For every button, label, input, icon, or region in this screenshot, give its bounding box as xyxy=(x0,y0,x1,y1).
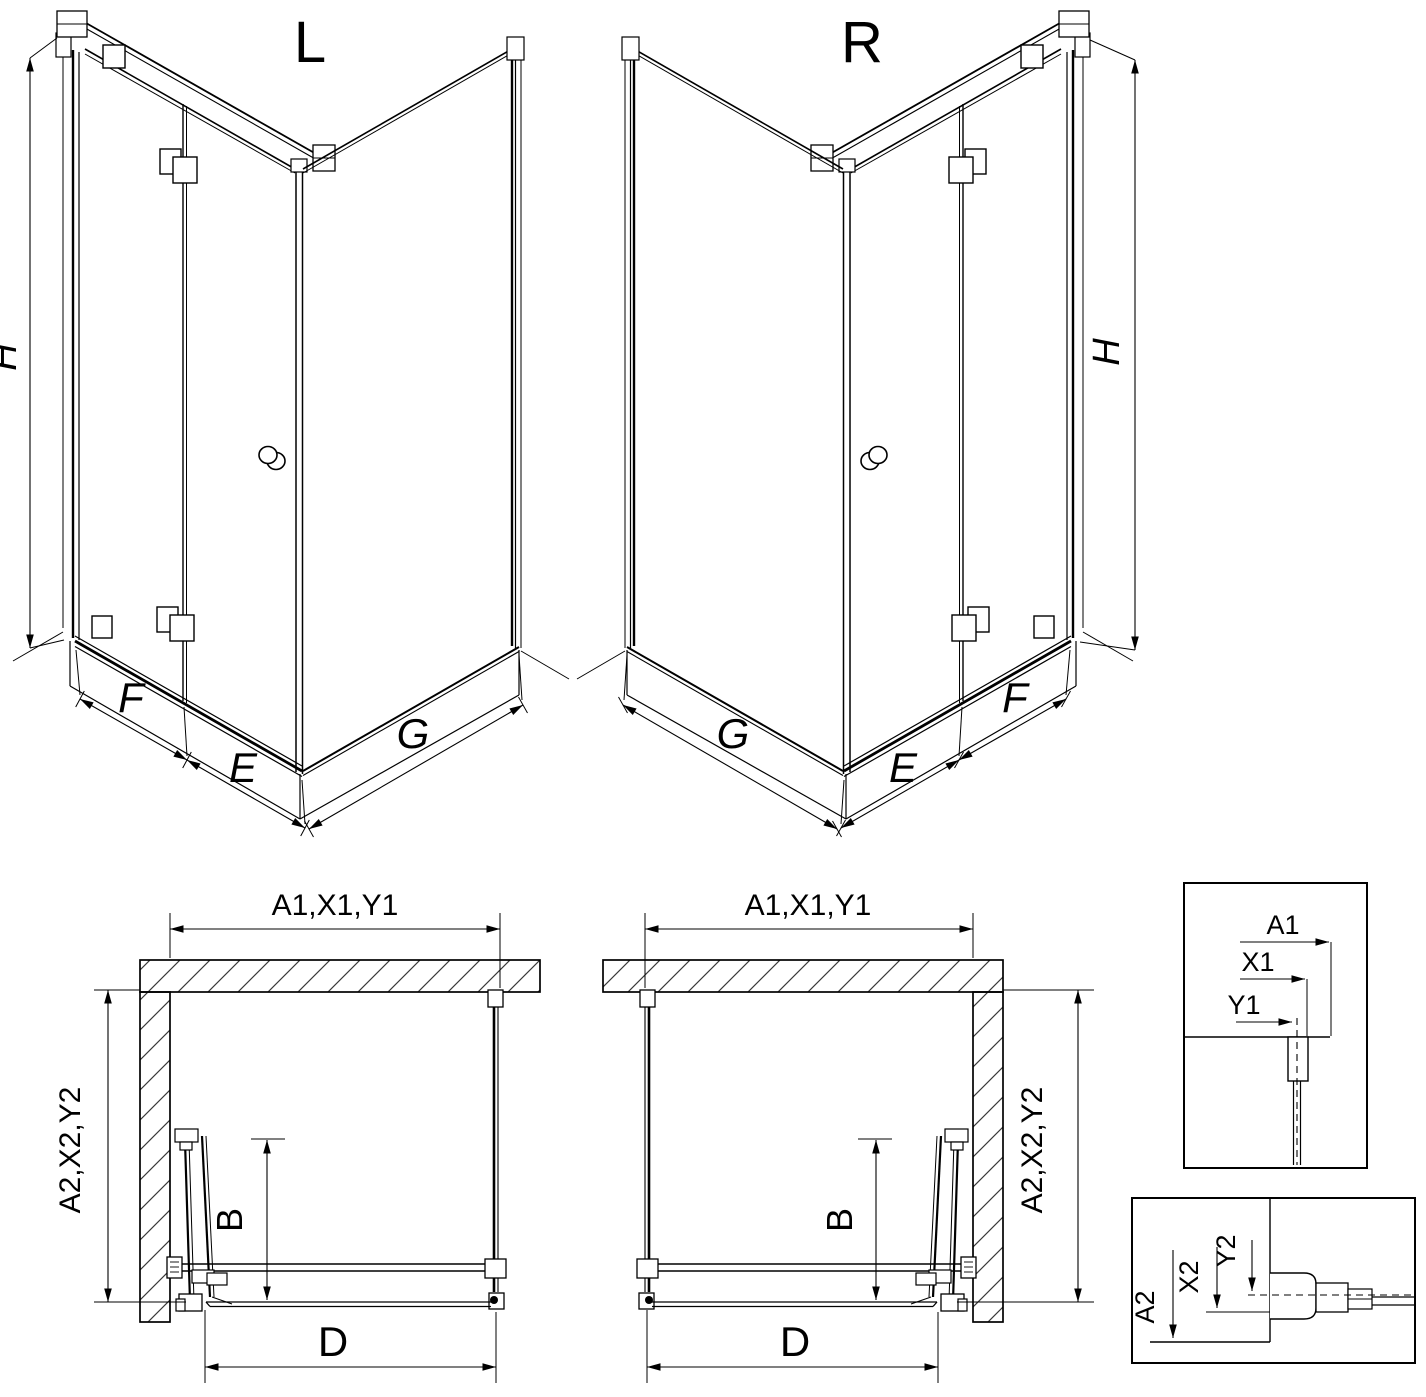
wall-hatch-side-left-plan xyxy=(140,992,170,1322)
dim-label-side-wall-right: G xyxy=(717,710,750,757)
dim-label-door-right-plan: B xyxy=(819,1208,860,1232)
detail-label-a2: A2 xyxy=(1130,1290,1160,1323)
dim-label-opening-right-plan: D xyxy=(780,1318,810,1365)
detail-label-x2: X2 xyxy=(1174,1260,1204,1293)
iso-right-dims-bottom: F E G xyxy=(619,650,1071,837)
iso-left-dim-height: H xyxy=(0,38,64,648)
detail-depth-measurement: A2 X2 Y2 xyxy=(1130,1198,1415,1363)
detail-label-x1: X1 xyxy=(1241,947,1274,977)
dim-label-depth-left-plan: A2,X2,Y2 xyxy=(54,1087,87,1214)
dim-label-door-fixed-left: F xyxy=(118,674,146,721)
dim-label-depth-right-plan: A2,X2,Y2 xyxy=(1016,1087,1049,1214)
plan-right-dim-door: B xyxy=(819,1139,892,1300)
dim-label-door-left-plan: B xyxy=(209,1208,250,1232)
plan-view-right: A1,X1,Y1 A2,X2,Y2 B D xyxy=(603,889,1094,1383)
plan-view-left: A1,X1,Y1 A2,X2,Y2 B D xyxy=(54,889,540,1383)
detail-label-a1: A1 xyxy=(1266,910,1299,940)
dim-label-door-fixed-right: F xyxy=(1002,674,1030,721)
dim-label-height-right: H xyxy=(1086,338,1128,366)
iso-view-left: L H F E G xyxy=(0,10,569,837)
dim-label-height-left: H xyxy=(0,343,25,371)
technical-drawing-sheet: L H F E G R xyxy=(0,0,1426,1397)
dim-label-opening-left-plan: D xyxy=(318,1318,348,1365)
iso-left-body xyxy=(13,11,569,819)
iso-right-body xyxy=(577,11,1133,819)
dim-label-width-right-plan: A1,X1,Y1 xyxy=(745,889,872,922)
iso-right-dim-height: H xyxy=(1080,40,1135,650)
dim-label-width-left-plan: A1,X1,Y1 xyxy=(272,889,399,922)
iso-view-right: R H F E G xyxy=(577,10,1135,837)
dim-label-door-swing-right: E xyxy=(889,744,918,791)
plan-right-dim-opening: D xyxy=(647,1310,938,1383)
detail-label-y1: Y1 xyxy=(1227,990,1260,1020)
wall-hatch-side-right-plan xyxy=(973,992,1003,1322)
wall-hatch-top-left-plan xyxy=(140,960,540,992)
detail-label-y2: Y2 xyxy=(1211,1234,1241,1267)
plan-left-dim-opening: D xyxy=(205,1310,496,1383)
dim-label-door-swing-left: E xyxy=(229,744,258,791)
variant-right-label: R xyxy=(841,10,883,75)
plan-right-body xyxy=(603,960,1003,1322)
iso-left-dims-bottom: F E G xyxy=(76,650,528,837)
plan-left-body xyxy=(140,960,540,1322)
detail-width-measurement: A1 X1 Y1 xyxy=(1184,883,1367,1168)
shower-enclosure-diagram: L H F E G R xyxy=(0,0,1426,1397)
wall-hatch-top-right-plan xyxy=(603,960,1003,992)
variant-left-label: L xyxy=(294,10,326,75)
dim-label-side-wall-left: G xyxy=(397,710,430,757)
